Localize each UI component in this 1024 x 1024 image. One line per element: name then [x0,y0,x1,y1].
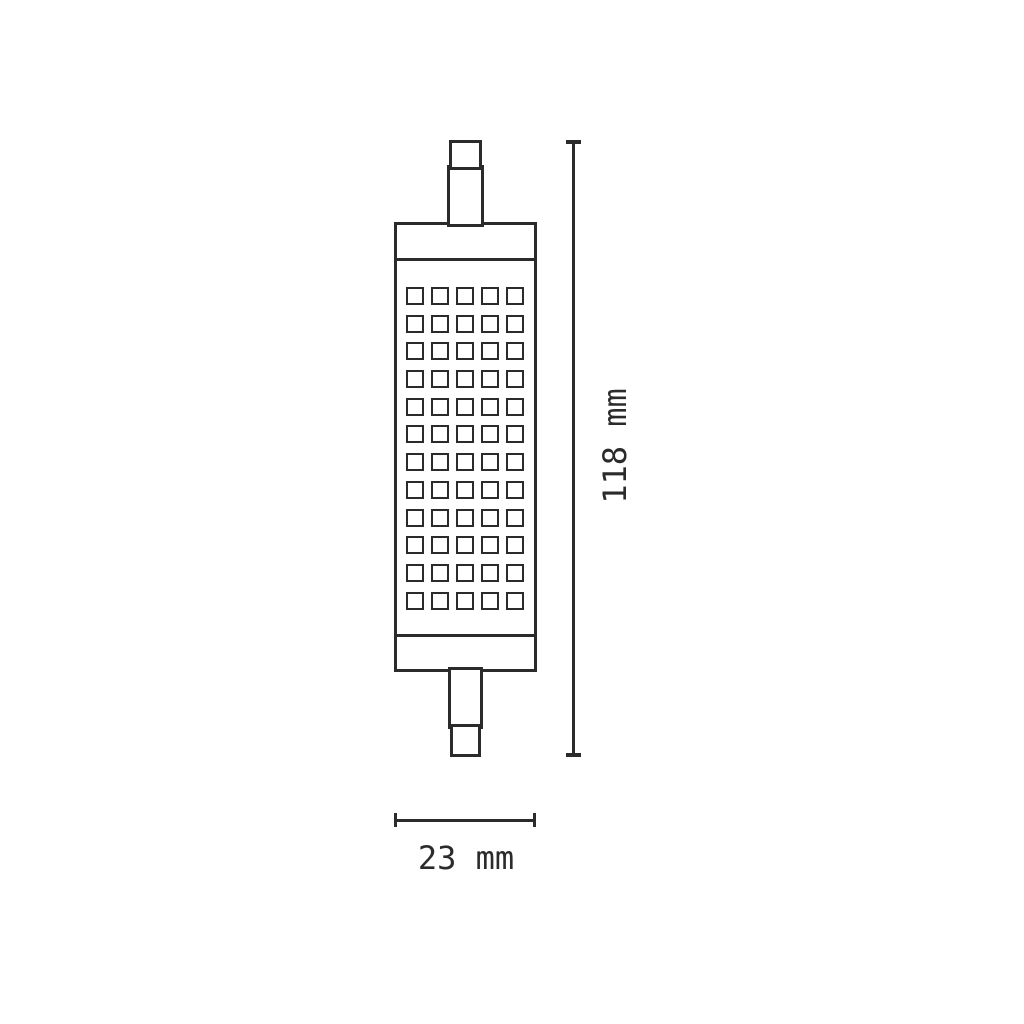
led-chip [431,592,449,610]
led-chip [456,342,474,360]
led-chip [506,592,524,610]
vertical-dimension-tick-top [566,140,581,144]
led-chip [481,287,499,305]
led-chip [506,425,524,443]
led-chip [406,564,424,582]
bottom-pin-tip [450,724,481,757]
led-chip [481,370,499,388]
led-chip [431,398,449,416]
led-chip [406,315,424,333]
led-chip [481,564,499,582]
led-chip [481,592,499,610]
led-chip [456,481,474,499]
led-chip [506,315,524,333]
led-grid [406,287,524,610]
led-chip [506,509,524,527]
led-chip [431,425,449,443]
led-chip [431,315,449,333]
horizontal-dimension-tick-left [394,813,397,827]
top-pin-base [447,165,484,227]
led-chip [456,536,474,554]
vertical-dimension-line [572,141,575,757]
led-chip [431,509,449,527]
led-chip [481,453,499,471]
led-chip [506,564,524,582]
led-chip [406,425,424,443]
led-chip [456,564,474,582]
diagram-canvas: 118 mm 23 mm [0,0,1024,1024]
led-chip [406,481,424,499]
led-chip [481,509,499,527]
led-chip [456,370,474,388]
width-dimension-label: 23 mm [418,842,514,874]
led-chip [406,287,424,305]
top-pin-tip [449,140,482,170]
bottom-pin-base [448,667,483,729]
led-chip [406,536,424,554]
led-chip [431,564,449,582]
led-chip [456,453,474,471]
led-chip [456,425,474,443]
led-chip [481,398,499,416]
led-chip [406,370,424,388]
led-chip [456,592,474,610]
led-chip [456,398,474,416]
led-chip [506,370,524,388]
led-chip [431,536,449,554]
led-chip [406,453,424,471]
led-chip [506,287,524,305]
led-chip [431,481,449,499]
led-chip [456,315,474,333]
led-chip [481,315,499,333]
led-chip [431,370,449,388]
led-chip [506,481,524,499]
led-chip [506,398,524,416]
led-chip [406,509,424,527]
led-chip [481,536,499,554]
led-chip [431,453,449,471]
led-chip [431,342,449,360]
led-chip [506,342,524,360]
vertical-dimension-tick-bottom [566,753,581,757]
led-chip [456,509,474,527]
led-chip [481,342,499,360]
led-chip [481,425,499,443]
top-end-cap [394,222,537,261]
led-chip [456,287,474,305]
horizontal-dimension-tick-right [533,813,536,827]
led-chip [506,453,524,471]
led-chip [431,287,449,305]
led-chip [481,481,499,499]
led-chip [406,342,424,360]
led-chip [406,592,424,610]
horizontal-dimension-line [395,819,536,822]
led-chip [406,398,424,416]
led-chip [506,536,524,554]
height-dimension-label: 118 mm [599,388,631,504]
